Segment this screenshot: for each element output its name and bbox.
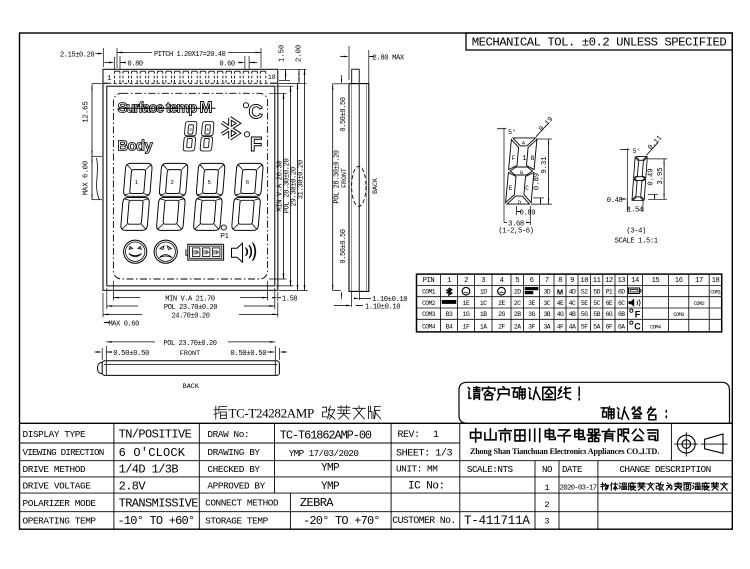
svg-text:14: 14 (631, 277, 639, 285)
svg-text:2E: 2E (498, 300, 505, 307)
svg-text:COM3: COM3 (422, 311, 436, 318)
svg-text:C: C (249, 102, 263, 124)
svg-text:(3-4): (3-4) (626, 227, 646, 235)
svg-text:DRIVE VOLTAGE: DRIVE VOLTAGE (23, 481, 92, 492)
svg-text:17: 17 (695, 277, 703, 285)
svg-text:S2: S2 (581, 289, 588, 296)
svg-text:COM4: COM4 (422, 323, 436, 330)
svg-text:10: 10 (580, 277, 588, 285)
svg-text:1B: 1B (480, 311, 487, 318)
svg-text:DATE: DATE (562, 465, 582, 475)
svg-text:SCALE 1.5:1: SCALE 1.5:1 (615, 237, 658, 245)
svg-text:2B: 2B (514, 311, 521, 318)
svg-text:SCALE:NTS: SCALE:NTS (467, 464, 514, 475)
svg-text:PIN: PIN (423, 277, 435, 285)
svg-text:6: 6 (530, 277, 534, 285)
svg-text:E: E (509, 185, 513, 192)
svg-text:YMP: YMP (321, 462, 340, 474)
svg-text:DRAW No:: DRAW No: (207, 429, 249, 440)
svg-text:TC-T24282AMP: TC-T24282AMP (229, 406, 314, 421)
svg-text:6A: 6A (618, 323, 625, 330)
svg-text:CHECKED BY: CHECKED BY (207, 464, 260, 475)
svg-text:4B: 4B (569, 311, 576, 318)
svg-text:5E: 5E (581, 300, 588, 307)
svg-text:F: F (635, 310, 641, 320)
svg-text:POL 28.30±0.20: POL 28.30±0.20 (333, 150, 341, 203)
svg-text:REV:: REV: (398, 429, 420, 440)
svg-text:6B: 6B (618, 311, 625, 318)
svg-text:1.50: 1.50 (279, 45, 287, 62)
svg-text:0.50±0.50: 0.50±0.50 (113, 350, 149, 358)
svg-text:1.54: 1.54 (627, 207, 643, 215)
svg-text:F: F (250, 134, 262, 156)
svg-text:2A: 2A (514, 323, 521, 330)
svg-text:4E: 4E (557, 300, 564, 307)
svg-text:3B: 3B (543, 311, 550, 318)
svg-text:DISPLAY TYPE: DISPLAY TYPE (23, 429, 86, 440)
svg-text:0.49: 0.49 (647, 168, 655, 185)
svg-text:2.80 MAX: 2.80 MAX (373, 54, 405, 62)
svg-text:18: 18 (268, 74, 276, 81)
svg-text:1D: 1D (480, 289, 487, 296)
svg-text:0.80: 0.80 (128, 61, 143, 69)
svg-text:DRAWING BY: DRAWING BY (207, 447, 260, 458)
svg-text:6: 6 (246, 180, 249, 186)
svg-text:5°: 5° (633, 148, 640, 155)
svg-text:2.00: 2.00 (295, 45, 303, 62)
svg-text:5A: 5A (593, 323, 600, 330)
svg-text:0.50±0.50: 0.50±0.50 (340, 97, 348, 131)
svg-text:4F: 4F (557, 323, 564, 330)
svg-text:TC-T61862AMP-00: TC-T61862AMP-00 (280, 428, 372, 442)
svg-text:COM2: COM2 (422, 300, 436, 307)
svg-text:11: 11 (593, 277, 601, 285)
svg-text:2: 2 (544, 500, 549, 510)
svg-text:M: M (200, 100, 213, 117)
svg-text:24.70±0.20: 24.70±0.20 (171, 312, 209, 320)
svg-text:2F: 2F (498, 323, 505, 330)
svg-text:18: 18 (712, 277, 720, 285)
svg-text:2C: 2C (514, 300, 521, 307)
svg-text:1: 1 (135, 180, 138, 186)
svg-text:9: 9 (570, 277, 574, 285)
svg-text:1E: 1E (463, 300, 470, 307)
svg-text:MECHANICAL TOL. ±0.2 UNLESS SP: MECHANICAL TOL. ±0.2 UNLESS SPECIFIED (472, 35, 727, 49)
svg-text:12.65: 12.65 (82, 101, 90, 123)
svg-text:1C: 1C (480, 300, 487, 307)
svg-text:2.15±0.20: 2.15±0.20 (60, 52, 94, 60)
svg-text:NO: NO (542, 465, 552, 475)
svg-text:M: M (557, 287, 563, 296)
svg-text:TN/POSITIVE: TN/POSITIVE (119, 428, 192, 442)
svg-text:MAX 6.00: MAX 6.00 (82, 161, 90, 196)
svg-text:13: 13 (617, 277, 625, 285)
svg-text:COM1: COM1 (710, 290, 721, 296)
svg-text:T-411711A: T-411711A (464, 514, 530, 528)
svg-text:7: 7 (545, 277, 549, 285)
svg-text:5F: 5F (581, 323, 588, 330)
svg-text:CHANGE DESCRIPTION: CHANGE DESCRIPTION (619, 464, 710, 475)
svg-text:1.10±0.10: 1.10±0.10 (365, 303, 400, 311)
svg-text:OPERATING TEMP: OPERATING TEMP (23, 515, 97, 526)
svg-text:5C: 5C (593, 300, 600, 307)
svg-text:3: 3 (544, 517, 549, 527)
svg-text:0.89: 0.89 (533, 173, 541, 190)
svg-text:STORAGE TEMP: STORAGE TEMP (205, 515, 268, 526)
svg-text:C: C (634, 322, 641, 332)
svg-text:Body: Body (118, 138, 154, 154)
svg-text:0.60: 0.60 (220, 61, 235, 69)
svg-text:B4: B4 (446, 323, 453, 330)
svg-text:COM2: COM2 (694, 301, 705, 307)
svg-text:3C: 3C (543, 300, 550, 307)
svg-text:TRANSMISSIVE: TRANSMISSIVE (119, 496, 199, 510)
svg-text:ZEBRA: ZEBRA (300, 496, 334, 510)
svg-text:3A: 3A (543, 323, 550, 330)
svg-text:31.30±0.20: 31.30±0.20 (298, 160, 306, 199)
svg-text:P1: P1 (606, 289, 613, 296)
svg-text:4D: 4D (569, 289, 576, 296)
svg-text:5G: 5G (581, 311, 588, 318)
svg-text:3: 3 (481, 277, 485, 285)
svg-text:4: 4 (500, 277, 504, 285)
svg-text:SHEET: 1/3: SHEET: 1/3 (396, 447, 453, 459)
svg-text:P1: P1 (220, 233, 229, 240)
svg-text:12: 12 (605, 277, 613, 285)
svg-text:2D: 2D (514, 289, 521, 296)
svg-text:5D: 5D (593, 289, 600, 296)
svg-text:3G: 3G (528, 311, 535, 318)
svg-text:3E: 3E (528, 300, 535, 307)
svg-text:0.48: 0.48 (607, 197, 623, 205)
svg-text:COM1: COM1 (422, 289, 436, 296)
svg-text:8: 8 (558, 277, 562, 285)
svg-text:1G: 1G (463, 311, 470, 318)
svg-text:16: 16 (675, 277, 683, 285)
svg-text:YMP: YMP (321, 481, 340, 493)
svg-text:1: 1 (433, 429, 439, 440)
svg-text:3F: 3F (528, 323, 535, 330)
svg-text:6E: 6E (606, 300, 613, 307)
svg-text:POL 23.70±0.20: POL 23.70±0.20 (163, 340, 216, 348)
svg-text:CONNECT METHOD: CONNECT METHOD (205, 497, 279, 508)
svg-text:0.89: 0.89 (520, 209, 536, 217)
svg-text:PITCH 1.20X17=20.40: PITCH 1.20X17=20.40 (154, 51, 226, 59)
svg-text:6 O'CLOCK: 6 O'CLOCK (119, 446, 186, 460)
svg-text:POLARIZER MODE: POLARIZER MODE (23, 498, 97, 509)
svg-text:C: C (525, 185, 529, 192)
svg-text:IC No:: IC No: (408, 480, 445, 492)
svg-text:5: 5 (208, 180, 211, 186)
svg-text:4C: 4C (569, 300, 576, 307)
svg-text:5°: 5° (508, 128, 516, 136)
svg-text:B3: B3 (446, 311, 453, 318)
svg-text:UNIT: MM: UNIT: MM (396, 464, 438, 475)
svg-text:F: F (512, 155, 516, 162)
svg-text:2020-03-17: 2020-03-17 (560, 485, 597, 493)
svg-text:6D: 6D (618, 289, 625, 296)
svg-text:1/4D 1/3B: 1/4D 1/3B (119, 463, 179, 477)
svg-text:CUSTOMER No.: CUSTOMER No. (392, 515, 455, 526)
svg-text:1.50: 1.50 (282, 296, 297, 304)
svg-text:1: 1 (544, 483, 549, 493)
svg-text:Zhong Shan Tianchuan Electroni: Zhong Shan Tianchuan Electronics Applian… (470, 447, 659, 456)
svg-text:G: G (520, 169, 523, 176)
svg-text:2: 2 (464, 277, 468, 285)
svg-text:0.50±0.50: 0.50±0.50 (230, 350, 266, 358)
svg-text:1F: 1F (463, 323, 470, 330)
svg-text:5: 5 (515, 277, 519, 285)
svg-text:MAX 0.60: MAX 0.60 (109, 321, 140, 329)
svg-text:4G: 4G (557, 311, 564, 318)
svg-text:15: 15 (652, 277, 660, 285)
svg-text:3.95: 3.95 (657, 167, 665, 184)
svg-text:FRONT: FRONT (180, 350, 200, 358)
svg-text:9.31: 9.31 (541, 156, 549, 173)
svg-text:5B: 5B (593, 311, 600, 318)
svg-text:0.50±0.50: 0.50±0.50 (340, 229, 348, 263)
svg-text:BACK: BACK (372, 178, 379, 194)
svg-text:6F: 6F (606, 323, 613, 330)
svg-text:-10° TO +60°: -10° TO +60° (118, 514, 195, 528)
svg-text:-20° TO +70°: -20° TO +70° (303, 514, 380, 528)
svg-text:4A: 4A (569, 323, 576, 330)
svg-text:2: 2 (171, 180, 174, 186)
svg-text:2.8V: 2.8V (119, 479, 147, 493)
svg-text:1: 1 (447, 277, 451, 285)
svg-text:3D: 3D (543, 289, 550, 296)
svg-text:1: 1 (107, 75, 111, 83)
svg-text:FRONT: FRONT (341, 168, 348, 188)
svg-text:APPROVED BY: APPROVED BY (207, 481, 265, 492)
svg-text:BACK: BACK (183, 383, 200, 391)
svg-text:DRIVE METHOD: DRIVE METHOD (23, 464, 86, 475)
svg-text:(1-2,5-6): (1-2,5-6) (498, 227, 533, 235)
svg-text:B: B (531, 155, 535, 162)
svg-text:COM3: COM3 (673, 312, 684, 318)
svg-text:1: 1 (522, 155, 526, 163)
svg-text:6G: 6G (606, 311, 613, 318)
svg-text:YMP 17/03/2020: YMP 17/03/2020 (289, 448, 359, 459)
svg-text:2G: 2G (498, 311, 505, 318)
svg-text:VIEWING DIRECTION: VIEWING DIRECTION (23, 447, 104, 458)
svg-text:COM4: COM4 (650, 324, 661, 330)
svg-text:6C: 6C (618, 300, 625, 307)
svg-text:1A: 1A (480, 323, 487, 330)
